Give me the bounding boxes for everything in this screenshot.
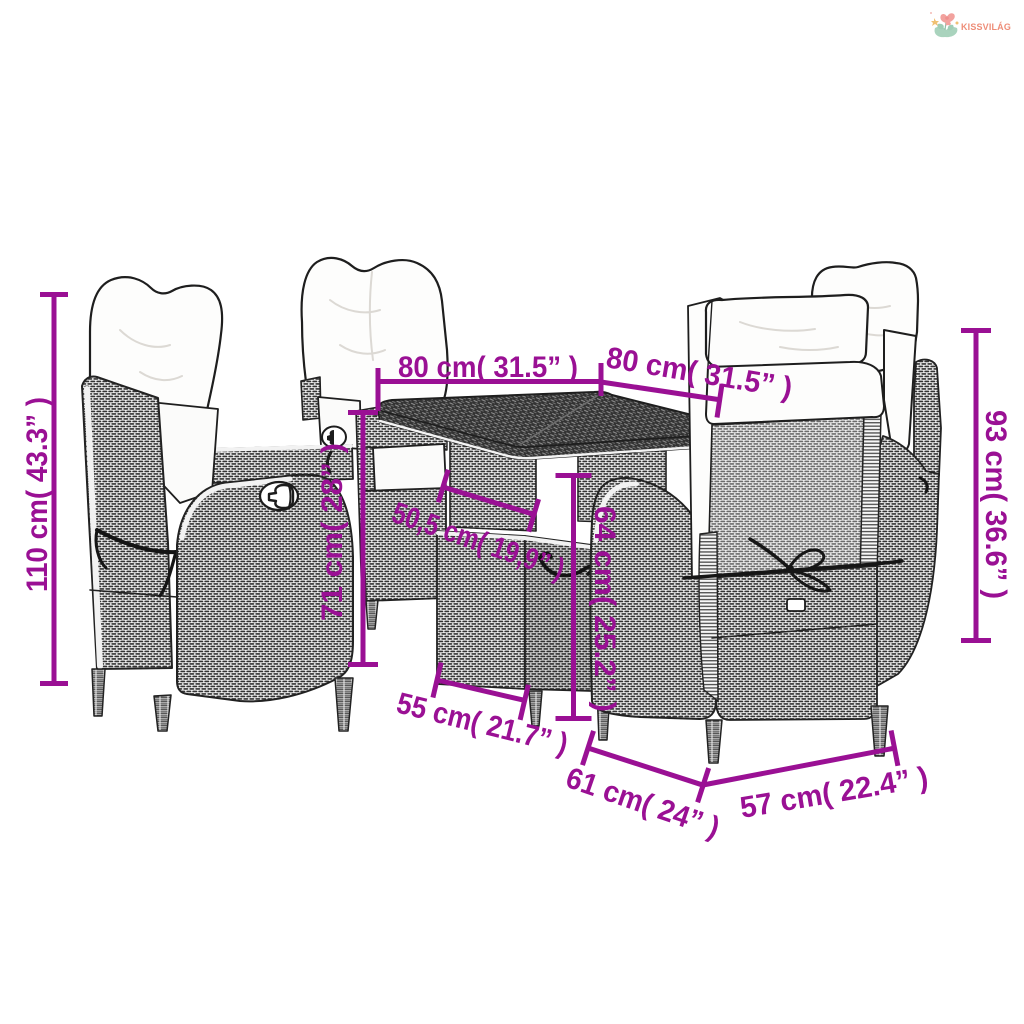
svg-text:64 cm( 25.2” ): 64 cm( 25.2” ) [588,506,621,712]
svg-text:KISSVILÁG: KISSVILÁG [961,22,1011,33]
svg-text:93 cm( 36.6” ): 93 cm( 36.6” ) [979,410,1012,599]
svg-text:71 cm( 28” ): 71 cm( 28” ) [316,443,349,621]
svg-text:80 cm( 31.5” ): 80 cm( 31.5” ) [398,351,578,384]
svg-text:110 cm( 43.3” ): 110 cm( 43.3” ) [21,397,54,592]
